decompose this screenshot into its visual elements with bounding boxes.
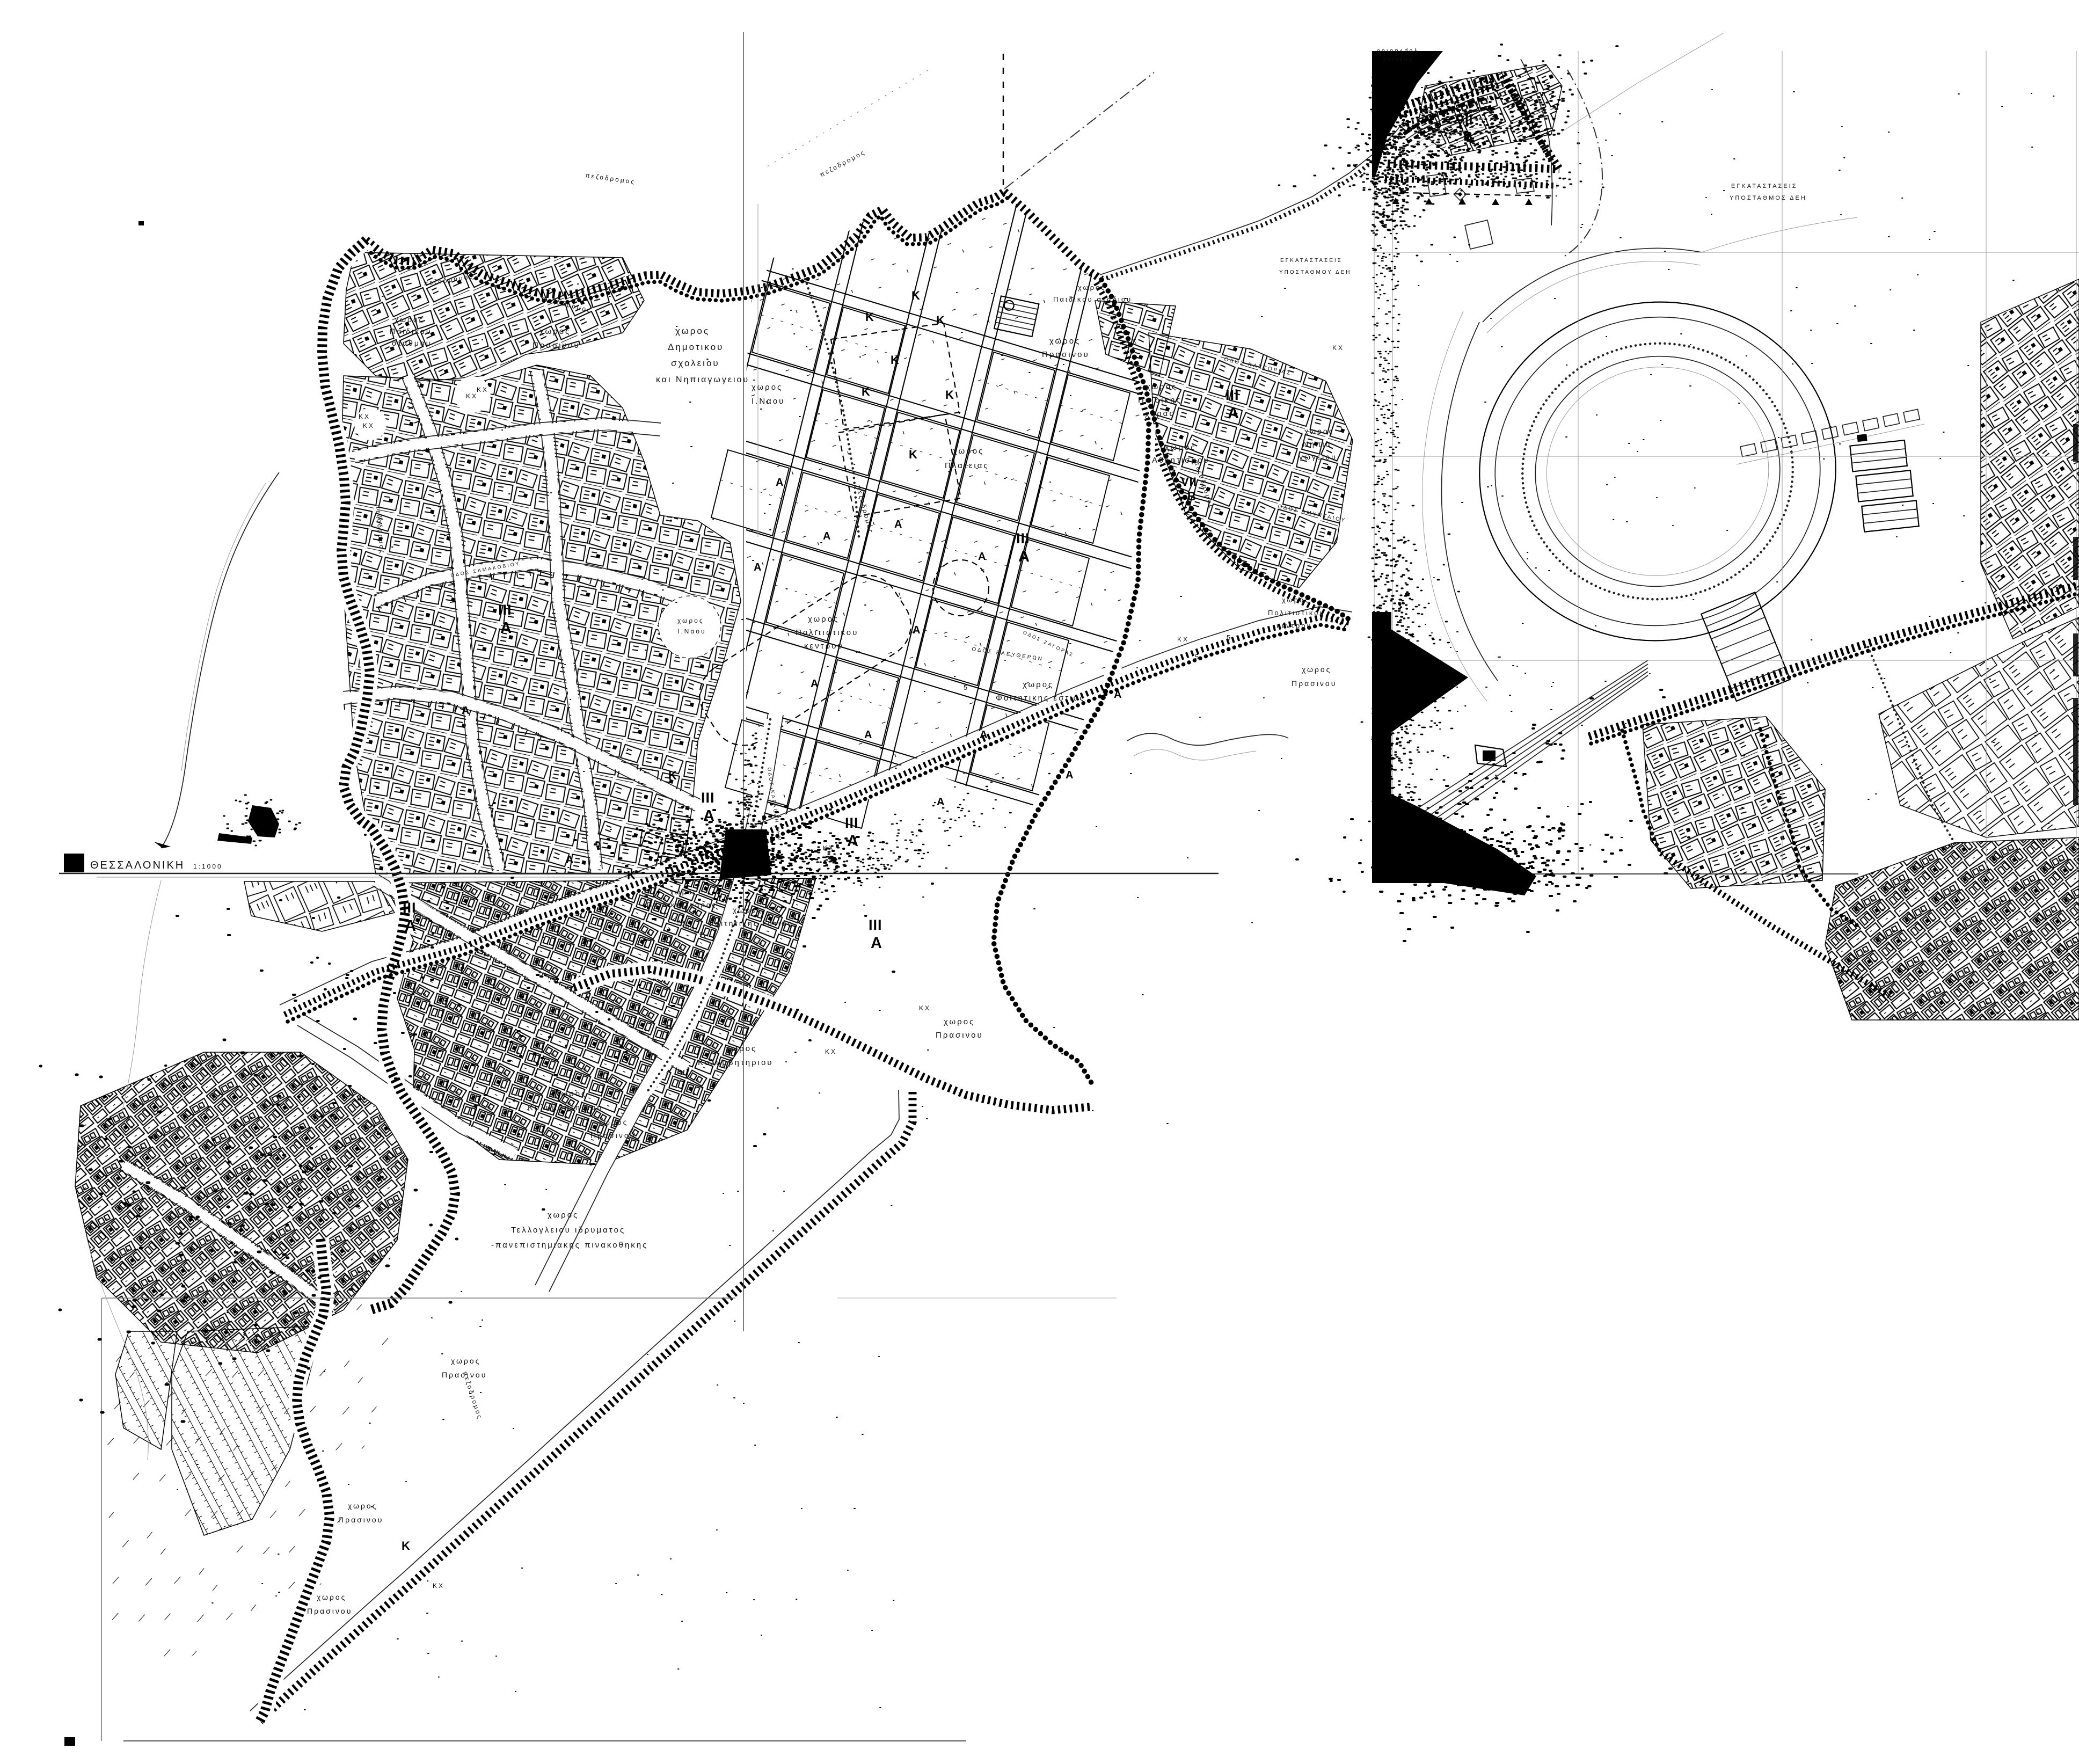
svg-text:χωρος: χωρος <box>1078 283 1106 291</box>
svg-text:χωρος: χωρος <box>677 617 704 624</box>
svg-text:Α: Α <box>1066 769 1074 781</box>
svg-text:Κολυμβητηριου: Κολυμβητηριου <box>528 1103 603 1112</box>
svg-text:III: III <box>701 790 715 806</box>
svg-text:χωρος: χωρος <box>556 1089 587 1098</box>
svg-text:χωρος: χωρος <box>1049 337 1081 346</box>
svg-text:χωρος: χωρος <box>1302 665 1331 674</box>
svg-text:Κ: Κ <box>891 353 900 367</box>
svg-text:ΚΧ: ΚΧ <box>777 885 789 893</box>
svg-text:χωρος: χωρος <box>752 383 783 392</box>
svg-text:Δημοτικου: Δημοτικου <box>668 342 724 352</box>
svg-text:Α: Α <box>1018 548 1030 565</box>
svg-text:Κ: Κ <box>945 388 954 402</box>
svg-text:Πρασινου: Πρασινου <box>532 341 580 350</box>
svg-text:χωρος: χωρος <box>348 1501 377 1510</box>
svg-text:Α: Α <box>913 624 921 636</box>
svg-text:ΚΧ: ΚΧ <box>919 1004 931 1012</box>
svg-text:VII: VII <box>1456 113 1473 128</box>
svg-text:ΚΧ: ΚΧ <box>1177 636 1189 643</box>
svg-text:Α: Α <box>811 678 819 690</box>
svg-text:χωρος: χωρος <box>1146 382 1177 391</box>
svg-text:Α: Α <box>405 917 417 935</box>
svg-text:VII: VII <box>1181 475 1197 489</box>
svg-text:χωρος: χωρος <box>548 1211 579 1220</box>
svg-text:χωρος: χωρος <box>675 326 710 336</box>
svg-text:γυμνασιου: γυμνασιου <box>1375 48 1417 54</box>
svg-text:και Νηπιαγωγειου: και Νηπιαγωγειου <box>656 375 749 384</box>
svg-text:Β: Β <box>1187 490 1197 503</box>
svg-text:Α: Α <box>871 935 882 952</box>
svg-text:λυκειου: λυκειου <box>1381 56 1412 63</box>
svg-text:χωρος: χωρος <box>1023 680 1054 689</box>
svg-text:ΘΕΣΣΑΛΟΝΙΚΗ: ΘΕΣΣΑΛΟΝΙΚΗ <box>90 859 185 871</box>
svg-text:Φοιτητικης εστιας: Φοιτητικης εστιας <box>996 694 1085 703</box>
svg-text:ΥΠΟΣΤΑΘΜΟΥ ΔΕΗ: ΥΠΟΣΤΑΘΜΟΥ ΔΕΗ <box>1279 269 1352 275</box>
svg-text:5: 5 <box>964 683 969 691</box>
svg-text:χωρος: χωρος <box>1282 596 1310 604</box>
svg-text:Α: Α <box>462 705 470 717</box>
svg-text:ΚΧ: ΚΧ <box>825 1048 837 1055</box>
svg-text:Κολυμβητηριου: Κολυμβητηριου <box>698 1058 774 1067</box>
svg-text:ΚΧ: ΚΧ <box>433 1582 444 1590</box>
svg-text:Παιδικης: Παιδικης <box>1138 396 1182 405</box>
svg-text:Κ: Κ <box>936 314 945 327</box>
svg-text:ΕΓΚΑΤΑΣΤΑΣΕΙΣ: ΕΓΚΑΤΑΣΤΑΣΕΙΣ <box>1731 183 1798 189</box>
svg-text:5: 5 <box>1227 633 1232 642</box>
svg-text:χωρος: χωρος <box>539 327 571 336</box>
svg-text:Α: Α <box>754 562 762 573</box>
svg-text:III: III <box>1225 387 1239 403</box>
svg-text:χωρος: χωρος <box>953 447 984 456</box>
svg-text:Α: Α <box>937 796 945 808</box>
svg-text:5: 5 <box>1195 653 1200 661</box>
svg-text:Α: Α <box>566 854 574 866</box>
svg-text:Α: Α <box>864 729 872 741</box>
svg-text:Α: Α <box>1114 689 1122 701</box>
svg-text:III: III <box>869 917 882 933</box>
svg-text:Ι.Ναου: Ι.Ναου <box>752 397 785 406</box>
svg-text:χωρος: χωρος <box>726 1044 757 1053</box>
svg-text:σταθμου: σταθμου <box>392 339 432 347</box>
svg-text:ΚΧ: ΚΧ <box>466 392 478 400</box>
svg-text:Πρασινου: Πρασινου <box>1042 350 1090 359</box>
svg-text:ΥΠΟΣΤΑΘΜΟΣ ΔΕΗ: ΥΠΟΣΤΑΘΜΟΣ ΔΕΗ <box>1730 195 1807 201</box>
svg-text:Πρασινου: Πρασινου <box>338 1515 383 1524</box>
svg-text:Φοιτητικης εστιας: Φοιτητικης εστιας <box>707 919 793 928</box>
svg-text:ΚΧ: ΚΧ <box>477 386 488 393</box>
svg-text:Παιδικου: Παιδικου <box>390 327 432 336</box>
svg-text:Κ: Κ <box>909 448 918 461</box>
svg-text:Κ: Κ <box>911 289 921 302</box>
svg-text:Α: Α <box>1228 405 1239 422</box>
svg-text:Νηπια-: Νηπια- <box>1303 440 1336 448</box>
svg-text:ΕΓΚΑΤΑΣΤΑΣΕΙΣ: ΕΓΚΑΤΑΣΤΑΣΕΙΣ <box>1280 258 1343 264</box>
svg-text:κεντρου: κεντρου <box>804 642 844 651</box>
svg-text:Α: Α <box>776 477 784 489</box>
svg-text:ΚΧ: ΚΧ <box>359 413 370 420</box>
svg-text:III: III <box>498 602 512 618</box>
svg-text:Κ: Κ <box>627 869 636 882</box>
svg-text:Πολιτιστικου: Πολιτιστικου <box>796 628 858 637</box>
svg-text:Α: Α <box>847 833 859 850</box>
svg-text:χωρος: χωρος <box>670 888 698 896</box>
svg-text:χωρος: χωρος <box>395 315 424 324</box>
svg-text:Πρασινου: Πρασινου <box>936 1031 983 1040</box>
svg-text:χωρος: χωρος <box>733 906 762 914</box>
svg-text:χαρας: χαρας <box>1145 409 1175 418</box>
svg-text:Τελλογλειου ιδρυματος: Τελλογλειου ιδρυματος <box>511 1226 625 1235</box>
svg-text:χωρος: χωρος <box>808 615 839 624</box>
svg-text:III: III <box>1016 530 1030 546</box>
svg-text:Κ: Κ <box>865 310 874 324</box>
svg-text:Πρασινου: Πρασινου <box>590 1131 636 1140</box>
svg-text:Α: Α <box>894 519 902 530</box>
svg-text:σχολειου: σχολειου <box>671 358 720 368</box>
svg-text:Α: Α <box>500 619 512 637</box>
svg-text:Β: Β <box>1463 129 1473 144</box>
svg-text:Α: Α <box>980 729 988 741</box>
svg-text:Παιδικης χαρας: Παιδικης χαρας <box>647 901 717 909</box>
svg-text:Πρασινου: Πρασινου <box>1292 679 1337 688</box>
svg-text:κεντρου: κεντρου <box>1276 622 1312 630</box>
svg-text:χωρος: χωρος <box>1165 443 1196 452</box>
svg-text:χωρος: χωρος <box>944 1017 975 1026</box>
svg-text:III: III <box>403 900 417 916</box>
svg-text:Πολιτιστικου: Πολιτιστικου <box>1268 609 1325 617</box>
svg-text:Κ: Κ <box>862 385 871 398</box>
svg-text:χωρος: χωρος <box>1304 427 1334 435</box>
svg-text:ΚΧ: ΚΧ <box>1126 338 1138 345</box>
svg-text:Πλατειας: Πλατειας <box>945 461 989 470</box>
svg-text:Κ: Κ <box>668 769 677 782</box>
svg-text:Α: Α <box>703 807 715 825</box>
svg-text:Πρασινου: Πρασινου <box>307 1607 352 1615</box>
svg-text:Α: Α <box>978 551 986 563</box>
svg-text:Ι.Ναου: Ι.Ναου <box>677 628 706 635</box>
svg-text:1:1000: 1:1000 <box>193 863 223 870</box>
svg-text:γωγειου: γωγειου <box>1299 453 1337 461</box>
svg-text:-πανεπιστημιακης πινακοθηκης: -πανεπιστημιακης πινακοθηκης <box>491 1241 648 1250</box>
svg-text:Α: Α <box>823 530 831 542</box>
svg-text:ΚΧ: ΚΧ <box>823 844 835 852</box>
svg-text:χωρος: χωρος <box>451 1357 480 1365</box>
svg-text:Κ: Κ <box>402 1539 411 1552</box>
svg-text:III: III <box>845 815 859 831</box>
svg-text:χωρος: χωρος <box>599 1118 628 1126</box>
svg-text:χωρος: χωρος <box>317 1593 346 1601</box>
svg-text:ΚΧ: ΚΧ <box>1332 344 1344 352</box>
svg-text:Παιδικου σταδιου: Παιδικου σταδιου <box>1053 295 1132 303</box>
svg-text:ΚΧ: ΚΧ <box>363 422 375 429</box>
